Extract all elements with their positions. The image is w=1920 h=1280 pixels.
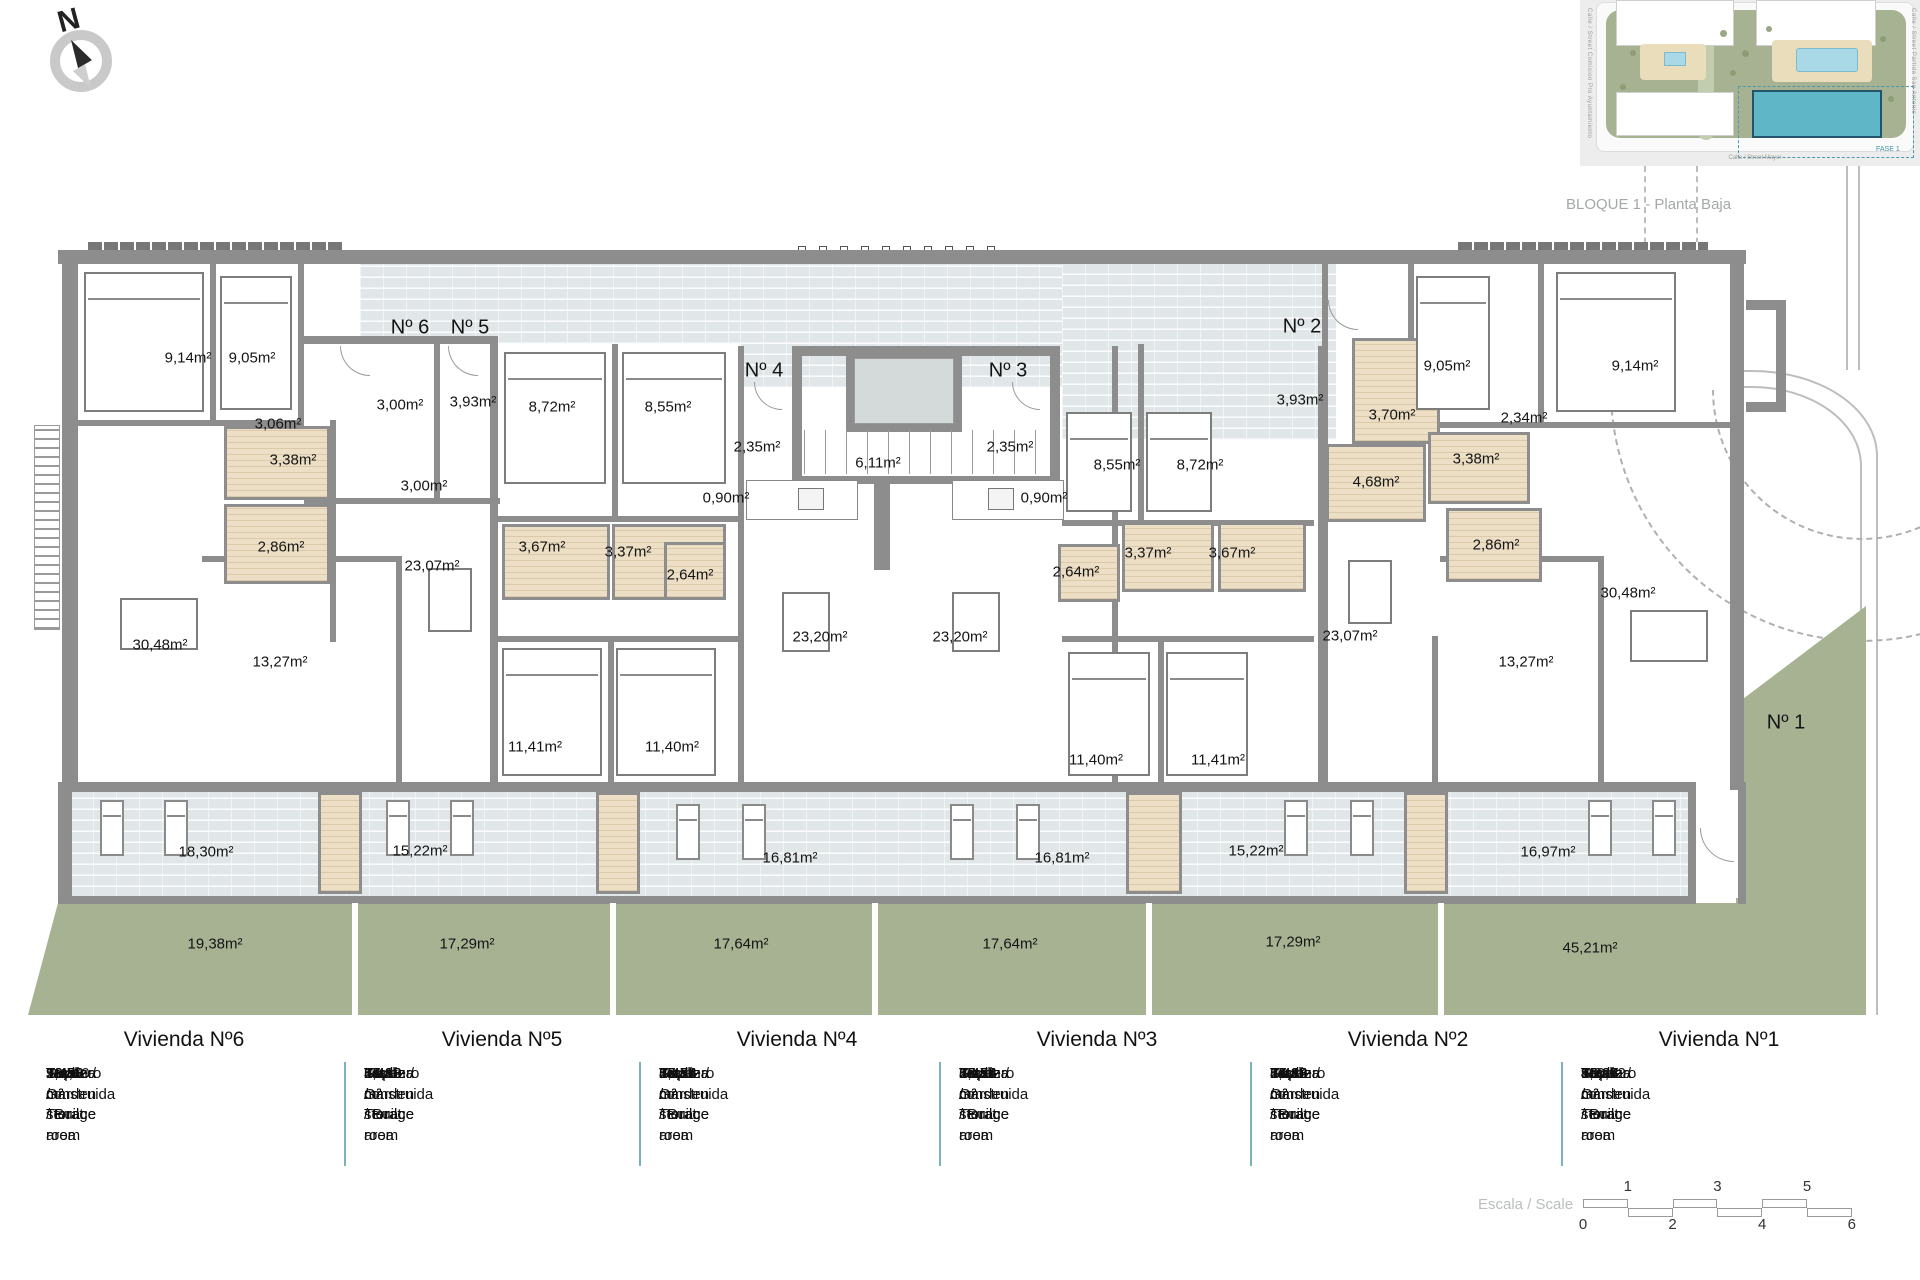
- wall-segment: [210, 264, 216, 424]
- unit-table: Vivienda Nº3Sup. construida / Built area…: [951, 1028, 1243, 1170]
- unit-table-title: Vivienda Nº3: [951, 1028, 1243, 1052]
- wall-segment: [738, 346, 744, 782]
- door-arc-n6: [340, 346, 370, 376]
- area-label: 2,34m²: [1501, 410, 1548, 427]
- wall-segment: [1408, 422, 1732, 428]
- road-lane-dashed-2: [1696, 166, 1698, 254]
- area-label: 15,22m²: [392, 843, 447, 860]
- area-label: 0,90m²: [703, 490, 750, 507]
- unit-marker: Nº 4: [745, 360, 783, 383]
- wall-segment: [58, 782, 1694, 792]
- area-label: 23,07m²: [404, 558, 459, 575]
- area-label: 11,40m²: [1069, 752, 1123, 769]
- table-separator: [939, 1062, 941, 1166]
- area-label: 23,20m²: [932, 629, 987, 646]
- sun-lounger: [1350, 800, 1374, 856]
- area-label: 30,48m²: [1600, 585, 1655, 602]
- area-label: 9,14m²: [165, 350, 212, 367]
- unit-marker: Nº 3: [989, 360, 1027, 383]
- wall-segment: [62, 264, 78, 790]
- area-label: 9,05m²: [1424, 358, 1471, 375]
- tree: [1766, 26, 1772, 32]
- wall-segment: [330, 420, 336, 642]
- wall-segment: [1688, 782, 1696, 904]
- area-label: 3,38m²: [270, 452, 317, 469]
- garden-divider: [352, 903, 358, 1015]
- wall-segment: [1138, 344, 1144, 520]
- garden-right-wedge: [1736, 606, 1866, 1015]
- wall-segment: [792, 346, 802, 484]
- area-label: 3,00m²: [377, 397, 424, 414]
- area-label: 2,86m²: [1473, 537, 1520, 554]
- area-label: 3,38m²: [1453, 451, 1500, 468]
- area-label: 9,14m²: [1612, 358, 1659, 375]
- area-label: 8,55m²: [645, 399, 692, 416]
- wall-segment: [1538, 264, 1544, 424]
- garden-divider: [610, 903, 616, 1015]
- unit-table-title: Vivienda Nº6: [38, 1028, 330, 1052]
- road-edge-1: [1846, 166, 1848, 370]
- table-separator: [1250, 1062, 1252, 1166]
- area-label: 23,07m²: [1322, 628, 1377, 645]
- wall-segment: [874, 484, 890, 570]
- bed: [504, 352, 606, 484]
- area-label: 3,06m²: [255, 416, 302, 433]
- area-label: 2,35m²: [987, 439, 1034, 456]
- unit-table: Vivienda Nº2Sup. construida / Built area…: [1262, 1028, 1554, 1170]
- area-label: 3,93m²: [450, 394, 497, 411]
- tree: [1730, 70, 1736, 76]
- area-label: 11,41m²: [1191, 752, 1245, 769]
- bed: [220, 276, 292, 410]
- wall-segment: [1050, 346, 1060, 484]
- row-value: 17,64 m²: [959, 1064, 997, 1105]
- garden-strip: [28, 903, 1740, 1015]
- area-label: 16,97m²: [1520, 844, 1575, 861]
- unit-table-title: Vivienda Nº2: [1262, 1028, 1554, 1052]
- area-label: 19,38m²: [187, 936, 242, 953]
- sun-lounger: [1284, 800, 1308, 856]
- unit-marker: Nº 5: [451, 317, 489, 340]
- bed: [1416, 276, 1490, 410]
- door-arc-n4: [754, 382, 782, 410]
- wall-segment: [1746, 402, 1786, 412]
- road-lane-dashed-1: [1644, 166, 1646, 254]
- area-label: 0,90m²: [1021, 490, 1068, 507]
- unit-table-title: Vivienda Nº4: [651, 1028, 943, 1052]
- wall-segment: [1322, 264, 1328, 784]
- area-label: 11,40m²: [645, 739, 699, 756]
- street-label-bottom: Calle / Street Mayor: [1690, 155, 1820, 161]
- dining-table: [428, 568, 472, 632]
- floorplan-page: N Calle / Street Mayor Calle / Street Co…: [0, 0, 1920, 1280]
- scale-segment: [1583, 1199, 1628, 1208]
- scale-tick: 4: [1758, 1216, 1766, 1233]
- wall-segment: [1738, 782, 1746, 904]
- garden-divider: [872, 903, 878, 1015]
- unit-table: Vivienda Nº6Sup. construida / Built area…: [38, 1028, 330, 1170]
- bed: [616, 648, 716, 776]
- area-label: 17,29m²: [439, 936, 494, 953]
- terrace-storage: [1126, 792, 1182, 894]
- garden-divider: [1438, 903, 1444, 1015]
- area-label: 23,20m²: [792, 629, 847, 646]
- tree: [1720, 30, 1727, 37]
- area-label: 8,55m²: [1094, 457, 1141, 474]
- area-label: 2,64m²: [1053, 564, 1100, 581]
- table-separator: [1561, 1062, 1563, 1166]
- bed: [84, 272, 204, 412]
- area-label: 15,22m²: [1228, 843, 1283, 860]
- terrace-storage: [318, 792, 362, 894]
- area-label: 11,41m²: [508, 739, 562, 756]
- garden-divider: [1146, 903, 1152, 1015]
- area-label: 2,35m²: [734, 439, 781, 456]
- area-label: 2,86m²: [258, 539, 305, 556]
- wall-segment: [498, 636, 740, 642]
- wall-segment: [1062, 636, 1314, 642]
- area-label: 9,05m²: [229, 350, 276, 367]
- area-label: 3,00m²: [401, 478, 448, 495]
- site-plan-pool-small: [1664, 52, 1686, 66]
- area-label: 16,81m²: [762, 850, 817, 867]
- area-label: 18,30m²: [178, 844, 233, 861]
- street-label-left: Calle / Street Comision Pro Ayuntamiento: [1586, 8, 1592, 148]
- wall-segment: [58, 790, 72, 900]
- table-separator: [639, 1062, 641, 1166]
- wall-segment: [304, 498, 500, 504]
- area-label: 17,64m²: [713, 936, 768, 953]
- wall-segment: [1158, 642, 1164, 782]
- site-plan-building-sw: [1616, 92, 1734, 136]
- unit-marker: Nº 2: [1283, 316, 1321, 339]
- elevator-car: [854, 358, 954, 424]
- sun-lounger: [450, 800, 474, 856]
- wall-segment: [1730, 264, 1744, 790]
- wall-segment: [298, 264, 304, 424]
- scale-label: Escala / Scale: [1478, 1196, 1573, 1213]
- area-label: 13,27m²: [252, 654, 307, 671]
- unit-marker: Nº 1: [1767, 712, 1805, 735]
- area-label: 13,27m²: [1498, 654, 1553, 671]
- row-value: 17,64 m²: [659, 1064, 697, 1105]
- area-label: 3,67m²: [519, 539, 566, 556]
- tree: [1620, 84, 1626, 90]
- block-title: BLOQUE 1 - Planta Baja: [1566, 196, 1731, 213]
- row-value: 19,38 m²: [46, 1064, 84, 1105]
- area-label: 3,37m²: [1125, 545, 1172, 562]
- area-label: 6,11m²: [855, 455, 901, 472]
- scale-tick: 3: [1713, 1178, 1721, 1195]
- area-label: 17,64m²: [982, 936, 1037, 953]
- row-value: 45,21 m²: [1581, 1064, 1619, 1105]
- scale-segment: [1717, 1208, 1762, 1217]
- area-label: 3,67m²: [1209, 545, 1256, 562]
- bathroom: [502, 524, 610, 600]
- site-plan-building-nw: [1616, 0, 1734, 46]
- area-label: 3,93m²: [1277, 392, 1324, 409]
- area-label: 8,72m²: [1177, 457, 1224, 474]
- dining-table: [1630, 610, 1708, 662]
- tree: [1630, 50, 1636, 56]
- scale-tick: 2: [1668, 1216, 1676, 1233]
- area-label: 2,64m²: [667, 567, 714, 584]
- site-plan-pool: [1796, 48, 1858, 72]
- scale-segment: [1762, 1199, 1807, 1208]
- unit-marker: Nº 6: [391, 317, 429, 340]
- retaining-wall-hatch: [34, 425, 60, 630]
- phase-label: FASE 1: [1876, 146, 1900, 153]
- scale-tick: 1: [1624, 1178, 1632, 1195]
- area-label: 8,72m²: [529, 399, 576, 416]
- sun-lounger: [676, 804, 700, 860]
- scale-segment: [1628, 1208, 1673, 1217]
- bathroom: [1428, 432, 1530, 504]
- sun-lounger: [1652, 800, 1676, 856]
- sun-lounger: [950, 804, 974, 860]
- scale-tick: 6: [1848, 1216, 1856, 1233]
- area-label: 45,21m²: [1562, 940, 1617, 957]
- area-label: 3,70m²: [1369, 407, 1416, 424]
- area-label: 17,29m²: [1265, 934, 1320, 951]
- row-value: 17,29 m²: [364, 1064, 402, 1105]
- unit-table: Vivienda Nº1Sup. construida / Built area…: [1573, 1028, 1865, 1170]
- kitchen-sink: [798, 488, 824, 510]
- area-label: 4,68m²: [1353, 474, 1400, 491]
- wall-segment: [58, 250, 1746, 264]
- row-value: 17,29 m²: [1270, 1064, 1308, 1105]
- bed: [622, 352, 726, 484]
- bed: [502, 648, 602, 776]
- sun-lounger: [100, 800, 124, 856]
- terrace-storage: [1404, 792, 1448, 894]
- area-label: 16,81m²: [1034, 850, 1089, 867]
- kitchen-sink: [988, 488, 1014, 510]
- site-plan-thumbnail: Calle / Street Mayor Calle / Street Comi…: [1580, 0, 1920, 166]
- dining-table: [1348, 560, 1392, 624]
- road-edge-2: [1858, 166, 1860, 370]
- compass: N: [40, 6, 130, 106]
- scale-tick: 5: [1803, 1178, 1811, 1195]
- wall-segment: [608, 642, 614, 782]
- area-label: 30,48m²: [132, 637, 187, 654]
- scale-segment: [1673, 1199, 1718, 1208]
- unit-table: Vivienda Nº5Sup. construida / Built area…: [356, 1028, 648, 1170]
- wall-segment: [498, 516, 740, 522]
- scale-tick: 0: [1579, 1216, 1587, 1233]
- door-arc-n5: [448, 346, 478, 376]
- tree: [1880, 36, 1886, 42]
- area-label: 3,37m²: [605, 544, 652, 561]
- unit-table-title: Vivienda Nº5: [356, 1028, 648, 1052]
- bed: [1556, 272, 1676, 412]
- wall-segment: [396, 556, 402, 782]
- unit-table: Vivienda Nº4Sup. construida / Built area…: [651, 1028, 943, 1170]
- sun-lounger: [1588, 800, 1612, 856]
- terrace-storage: [596, 792, 640, 894]
- unit-table-title: Vivienda Nº1: [1573, 1028, 1865, 1052]
- door-arc-n3: [1012, 382, 1040, 410]
- wall-segment: [1432, 636, 1438, 782]
- wall-segment: [612, 344, 618, 520]
- table-separator: [344, 1062, 346, 1166]
- street-label-right: Calle / Street Partida San Antonio: [1910, 8, 1916, 148]
- wall-segment: [1776, 300, 1786, 412]
- scale-segment: [1807, 1208, 1852, 1217]
- tree: [1742, 50, 1749, 57]
